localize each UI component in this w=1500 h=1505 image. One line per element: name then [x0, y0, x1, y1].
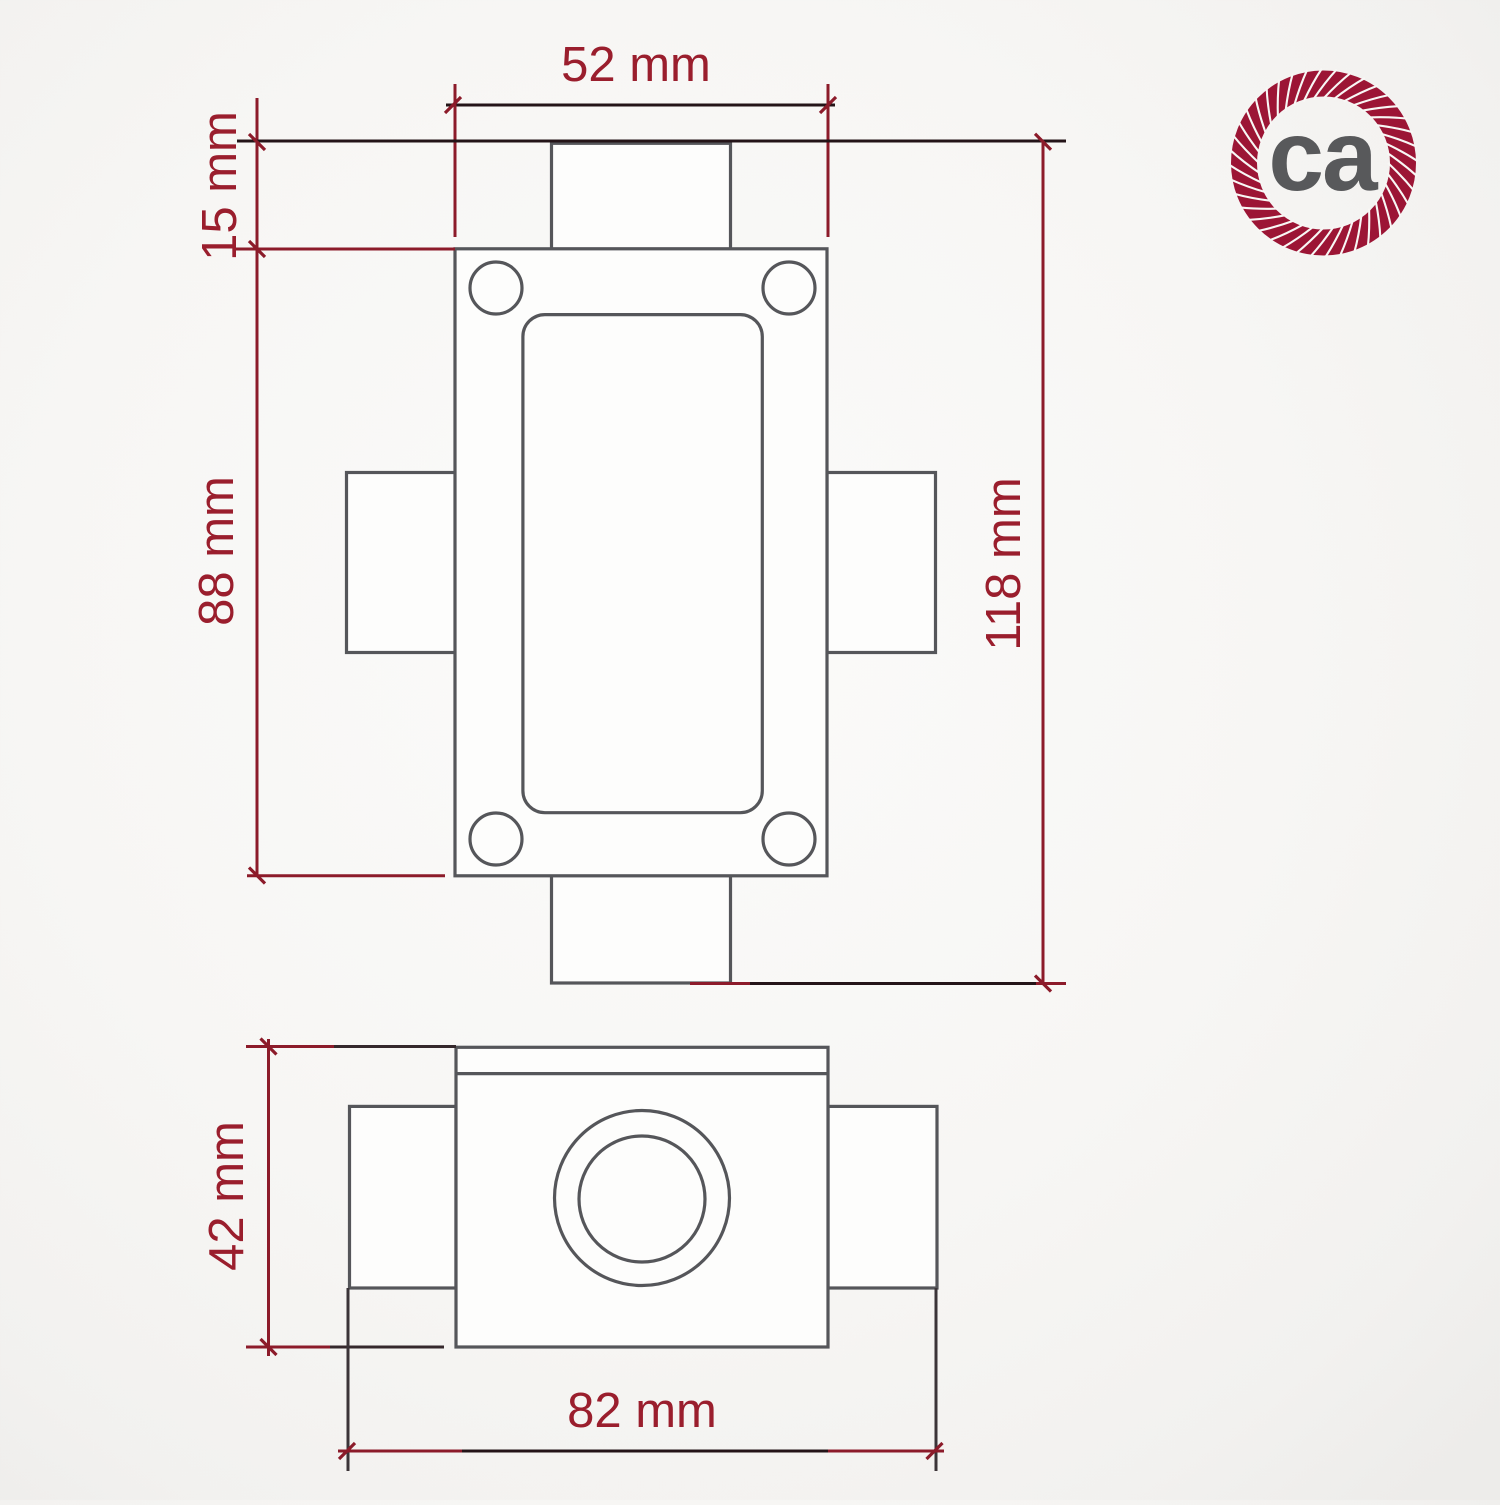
svg-text:88 mm: 88 mm — [190, 476, 244, 626]
svg-text:52 mm: 52 mm — [561, 38, 711, 92]
svg-text:118 mm: 118 mm — [977, 477, 1031, 650]
svg-text:ca: ca — [1268, 100, 1379, 212]
svg-text:82 mm: 82 mm — [567, 1384, 717, 1438]
svg-text:15 mm: 15 mm — [193, 111, 247, 261]
svg-text:42 mm: 42 mm — [200, 1121, 254, 1271]
